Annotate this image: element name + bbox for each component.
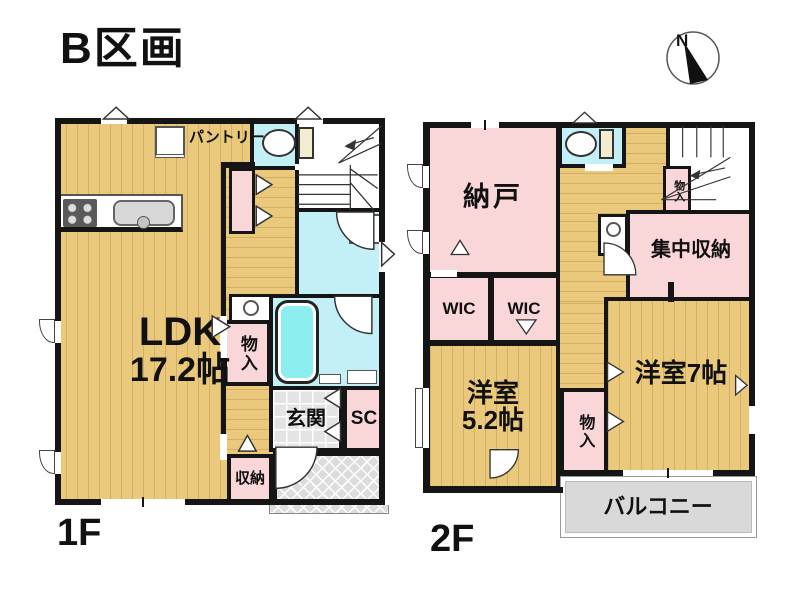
window-left-nando-2 <box>423 232 429 254</box>
slider-window-icon <box>415 388 423 448</box>
floor-plan-page: B区画 N <box>0 0 800 590</box>
genkan-label: 玄関 <box>273 390 339 448</box>
floor2-caption: 2F <box>430 520 474 560</box>
door-right-washroom <box>379 242 385 272</box>
floor1-caption: 1F <box>57 514 101 554</box>
awning-window-icon-1 <box>39 319 55 343</box>
window-top-toilet-1f <box>297 118 323 124</box>
window-left-nando-1 <box>423 166 429 188</box>
closet-1f-label: 物入 <box>229 326 265 382</box>
west7-label: 洋室7帖 <box>613 352 749 396</box>
porch-slab <box>269 505 389 514</box>
window-left-ldk-2 <box>55 452 61 474</box>
stair-closet-label: 物入 <box>666 170 690 212</box>
bath-stool-icon <box>347 370 377 384</box>
window-left-ldk-1 <box>55 321 61 343</box>
page-title: B区画 <box>60 26 186 72</box>
storage-1f-label: 収納 <box>231 458 269 500</box>
door-nando <box>431 270 457 277</box>
awning-window-icon-3 <box>407 164 423 188</box>
awning-window-icon-2 <box>39 450 55 474</box>
toilet-tank-icon-2f <box>599 129 614 159</box>
ldk-label: LDK <box>139 311 221 353</box>
sink-drain-icon <box>137 216 150 229</box>
wall-stub-central-storage <box>668 282 674 302</box>
wic-left-label: WIC <box>429 280 489 338</box>
hallway-2f-lower <box>558 302 608 394</box>
toilet-bowl-icon-1f <box>262 129 296 157</box>
hall-closet-1f <box>229 168 255 234</box>
west52-label: 洋室 <box>467 380 519 407</box>
pantry-label: パントリー <box>189 130 265 146</box>
compass: N <box>656 20 728 92</box>
closet-between-label: 物入 <box>565 400 603 464</box>
central-storage-label: 集中収納 <box>633 230 749 270</box>
wic-right-label: WIC <box>493 280 555 338</box>
door-toilet-1f <box>295 164 321 170</box>
ldk-size-label: 17.2帖 <box>130 353 230 389</box>
balcony-label: バルコニー <box>583 484 733 530</box>
floor-plan-2f: バルコニー <box>423 122 755 493</box>
entrance-porch <box>273 452 385 504</box>
toilet-tank-icon-1f <box>298 127 314 159</box>
door-toilet-2f <box>585 164 613 171</box>
refrigerator-space <box>155 126 185 158</box>
window-right-west7 <box>749 406 755 434</box>
stove-icon <box>63 199 97 227</box>
bathtub-icon <box>275 300 319 384</box>
sc-label: SC <box>347 390 381 448</box>
bath-counter-icon <box>319 374 341 384</box>
compass-north-label: N <box>676 31 688 50</box>
nando-label: 納戸 <box>433 162 553 232</box>
window-left-west52 <box>423 388 429 448</box>
awning-window-icon-4 <box>407 230 423 254</box>
floor-plan-1f: LDK 17.2帖 パントリー 物入 玄関 SC 収納 <box>55 118 385 505</box>
west52-size-label: 5.2帖 <box>462 407 524 434</box>
washing-machine-drum-icon <box>359 222 372 235</box>
toilet-bowl-icon-2f <box>565 131 597 157</box>
washbasin-icon-2f <box>606 222 621 237</box>
window-top-ldk <box>101 118 127 124</box>
